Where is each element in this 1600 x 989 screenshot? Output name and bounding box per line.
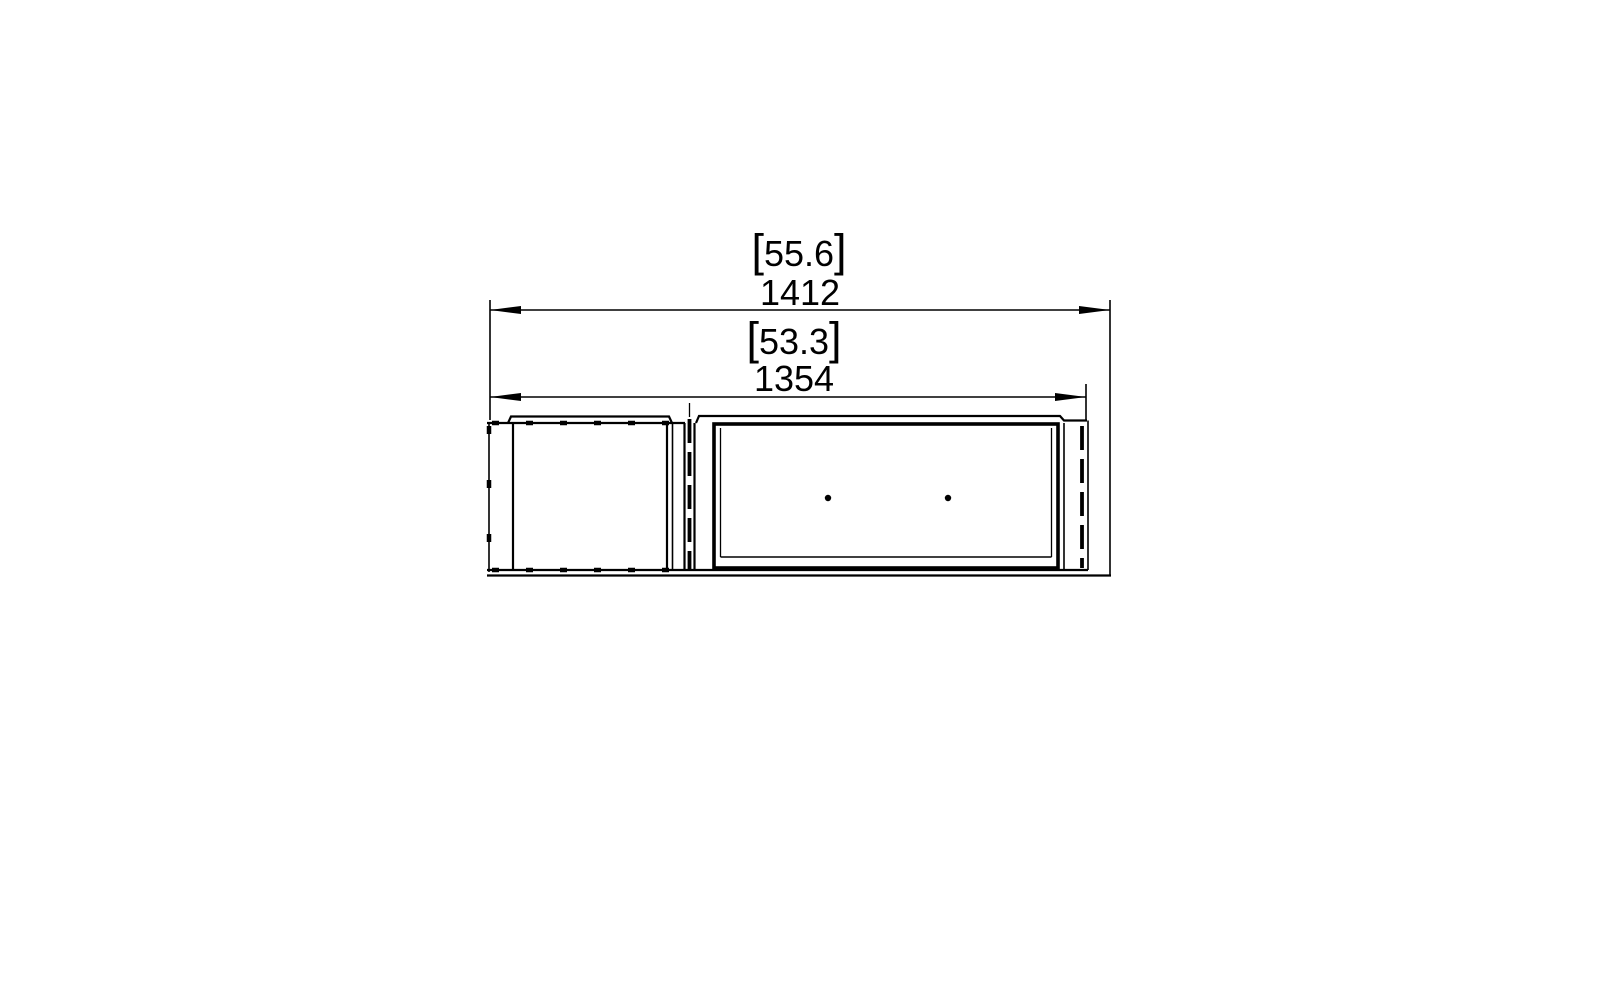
drawing-page: [55.6] 1412 [53.3] 1354	[0, 0, 1600, 989]
technical-drawing-canvas: [55.6] 1412 [53.3] 1354	[0, 0, 1600, 989]
burner-hole-right	[945, 495, 951, 501]
bracket-close-glyph: ]	[829, 313, 842, 364]
dim-bottom-metric-label: 1354	[754, 358, 834, 399]
bracket-open-glyph: [	[751, 225, 764, 276]
dim-bottom-imperial-value: 53.3	[759, 321, 829, 362]
dim-bottom-imperial-label: [53.3]	[746, 313, 841, 364]
dim-top-imperial-label: [55.6]	[751, 225, 846, 276]
drawing-background	[0, 0, 1600, 989]
dim-top-metric-label: 1412	[760, 272, 840, 313]
burner-hole-left	[825, 495, 831, 501]
bracket-open-glyph: [	[746, 313, 759, 364]
dimension-labels: [55.6] 1412 [53.3] 1354	[746, 225, 846, 399]
dim-top-imperial-value: 55.6	[764, 233, 834, 274]
bracket-close-glyph: ]	[834, 225, 847, 276]
